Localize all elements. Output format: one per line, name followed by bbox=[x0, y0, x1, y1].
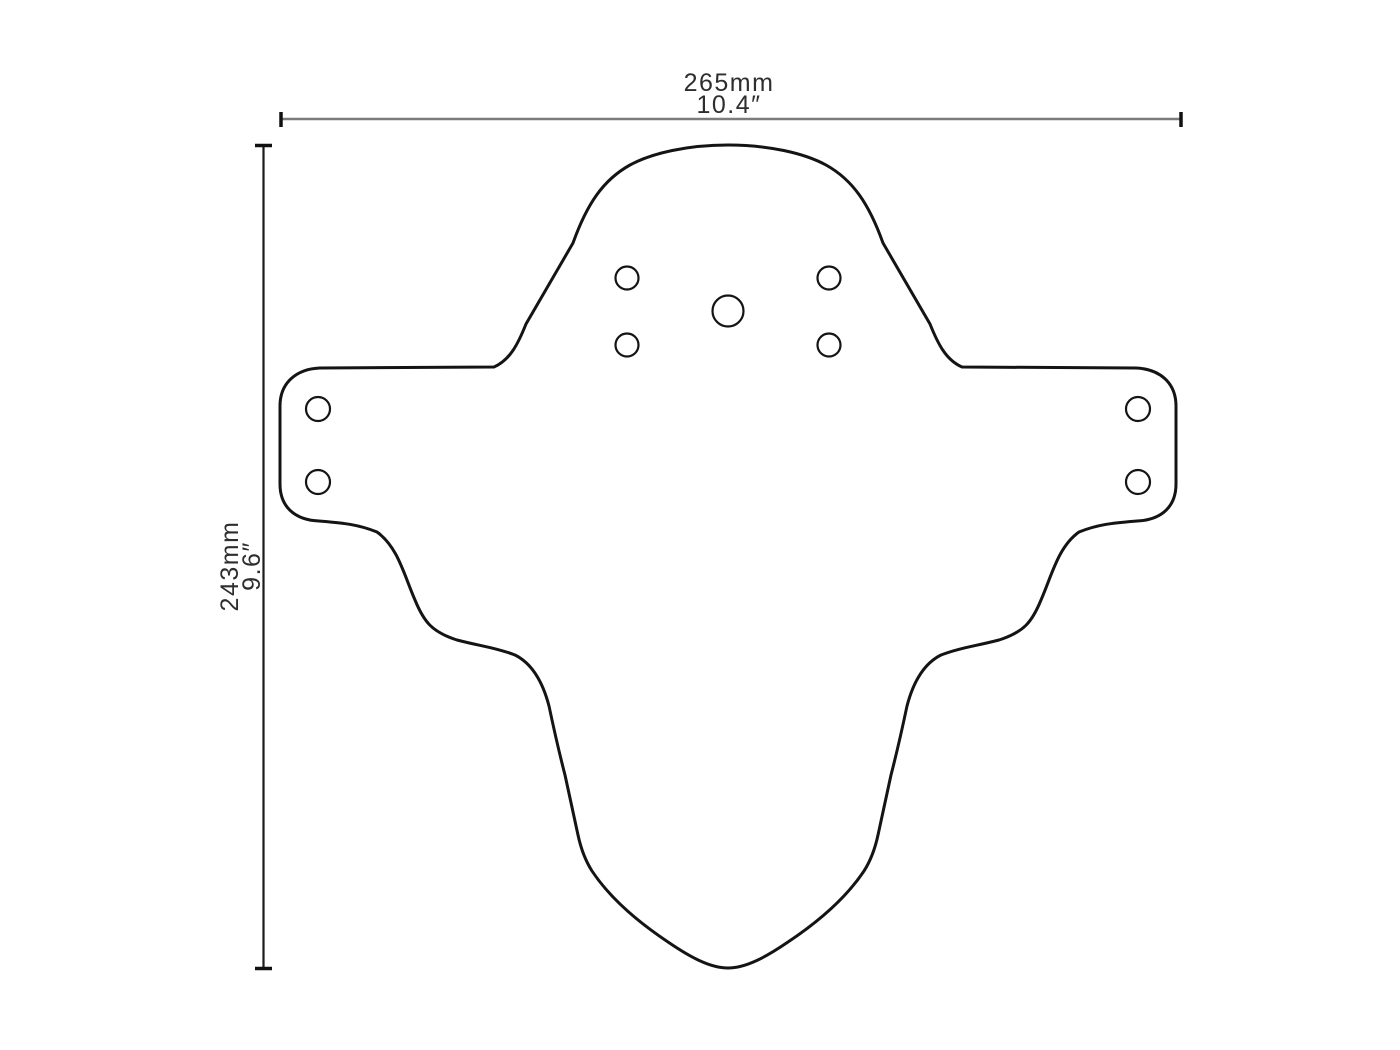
height-dimension-label: 243mm 9.6″ bbox=[219, 416, 263, 716]
mudguard-outline bbox=[280, 145, 1176, 968]
width-dimension-label: 265mm 10.4″ bbox=[529, 72, 929, 116]
mounting-hole-center-top-right bbox=[818, 267, 841, 290]
mounting-hole-left-tab-bottom bbox=[306, 470, 330, 494]
mounting-hole-center-large bbox=[713, 296, 744, 327]
mounting-hole-left-tab-top bbox=[306, 397, 330, 421]
mounting-hole-center-bottom-left bbox=[616, 334, 639, 357]
width-dimension-imperial: 10.4″ bbox=[529, 94, 929, 116]
diagram-canvas: 265mm 10.4″ 243mm 9.6″ bbox=[0, 0, 1400, 1050]
mounting-hole-center-bottom-right bbox=[818, 334, 841, 357]
height-dimension-imperial: 9.6″ bbox=[241, 416, 263, 716]
mudguard-dimension-drawing bbox=[0, 0, 1400, 1050]
mounting-hole-right-tab-bottom bbox=[1126, 470, 1150, 494]
mounting-hole-right-tab-top bbox=[1126, 397, 1150, 421]
mounting-hole-center-top-left bbox=[616, 267, 639, 290]
